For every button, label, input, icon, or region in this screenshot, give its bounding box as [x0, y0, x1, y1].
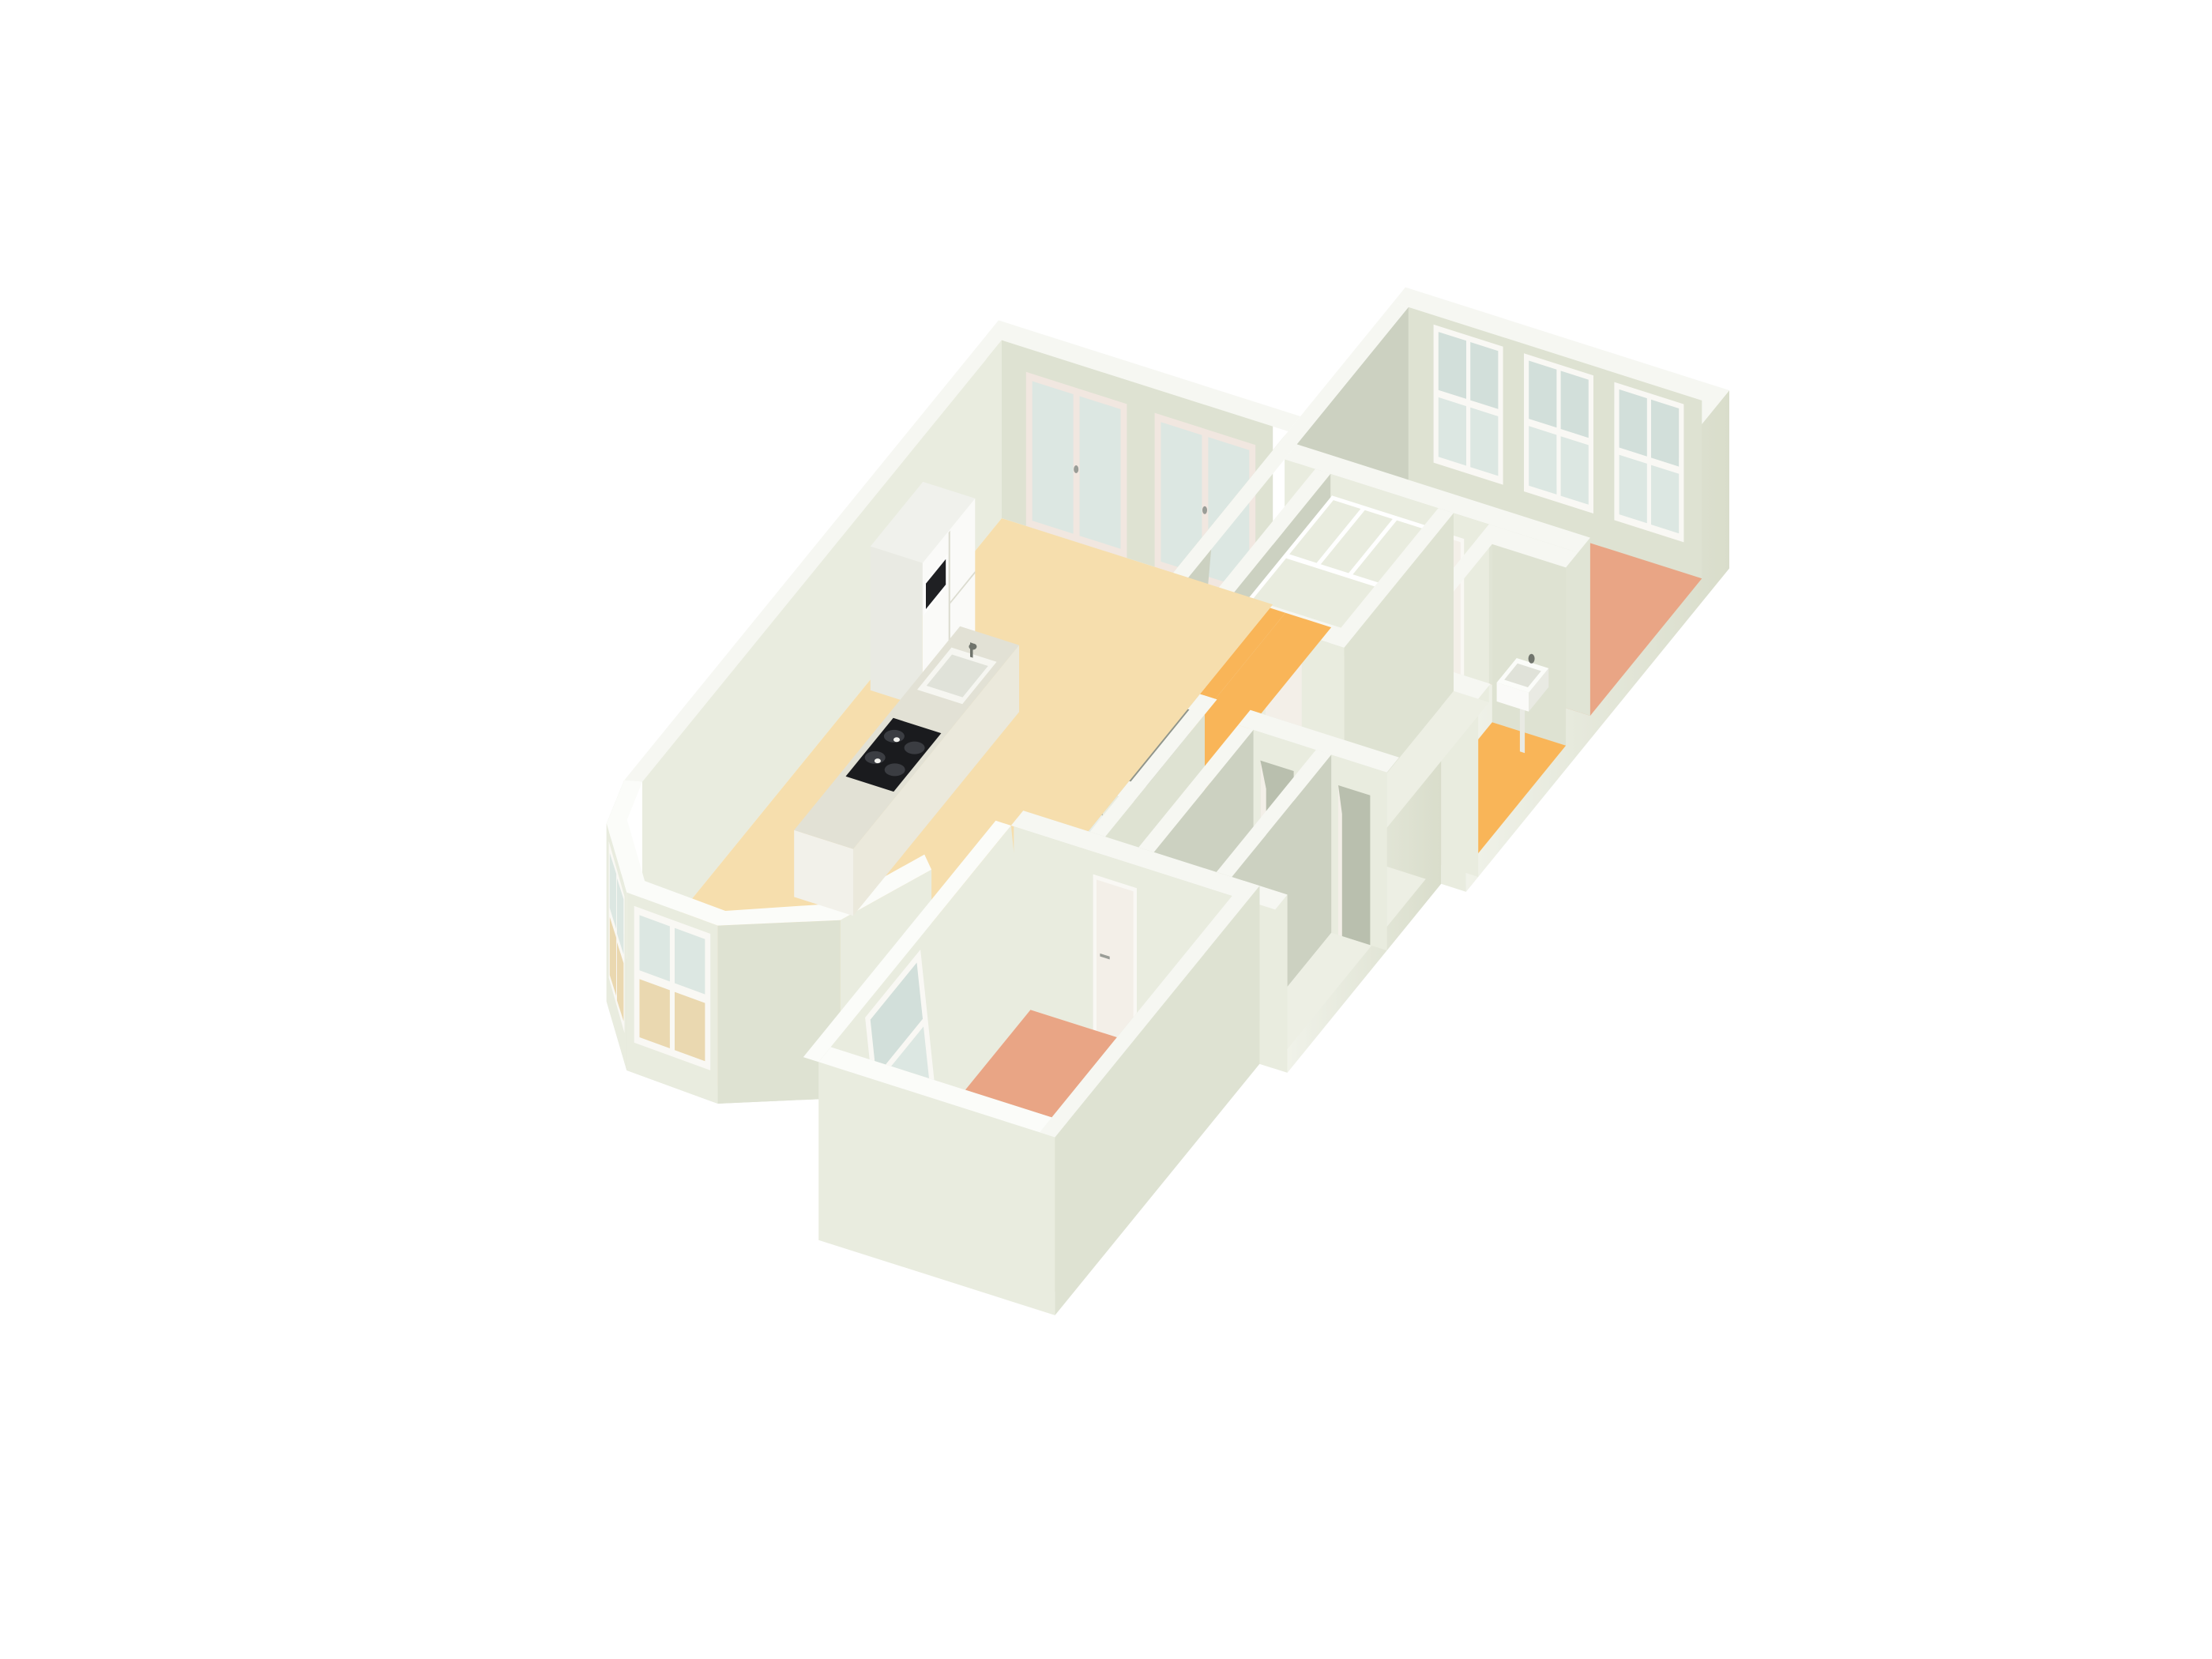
bedroom2-door — [1097, 880, 1134, 1043]
bedroom1-window-1-pane-ul — [1439, 332, 1466, 399]
french-door-1-glass-right — [1080, 397, 1121, 549]
storage-door-opening — [1338, 785, 1370, 945]
cooktop-burner-highlight-1 — [893, 737, 900, 742]
bedroom1-window-2-pane-ul — [1529, 361, 1556, 428]
bay-window-2-pane-lr — [675, 992, 705, 1062]
wc-faucet — [1529, 654, 1535, 664]
bedroom1-window-2-pane-ll — [1529, 426, 1556, 495]
bay-window-2-pane-ul — [640, 915, 670, 981]
bedroom1-window-2-pane-ur — [1561, 371, 1589, 438]
cooktop-burner-4 — [885, 763, 905, 776]
wing-step2-south-face — [1259, 886, 1287, 1073]
bedroom1-window-1-pane-lr — [1470, 408, 1498, 476]
apartment-3d-model — [607, 288, 1729, 1315]
french-door-1-handle — [1074, 465, 1078, 473]
bedroom1-window-3-pane-ul — [1619, 389, 1647, 457]
bedroom1-window-1-pane-ll — [1439, 397, 1466, 466]
floorplan-viewport — [0, 0, 2212, 1659]
cooktop-burner-highlight-2 — [875, 758, 881, 763]
wc-north-wall-face — [1492, 544, 1566, 746]
bedroom1-window-3-pane-lr — [1651, 465, 1679, 534]
bay-window-2-pane-ll — [640, 979, 670, 1048]
french-door-1-glass-left — [1033, 382, 1074, 534]
floorplan-3d-render — [0, 0, 2212, 1659]
bedroom1-window-2-pane-lr — [1561, 436, 1589, 505]
bedroom1-window-1-pane-ur — [1470, 342, 1498, 409]
island-faucet — [969, 644, 976, 650]
french-door-2-handle — [1202, 506, 1207, 514]
cooktop-burner-2 — [905, 742, 925, 754]
bedroom1-window-3-pane-ll — [1619, 455, 1647, 524]
bedroom1-window-3-pane-ur — [1651, 400, 1679, 467]
bay-window-2-pane-ur — [675, 928, 705, 995]
